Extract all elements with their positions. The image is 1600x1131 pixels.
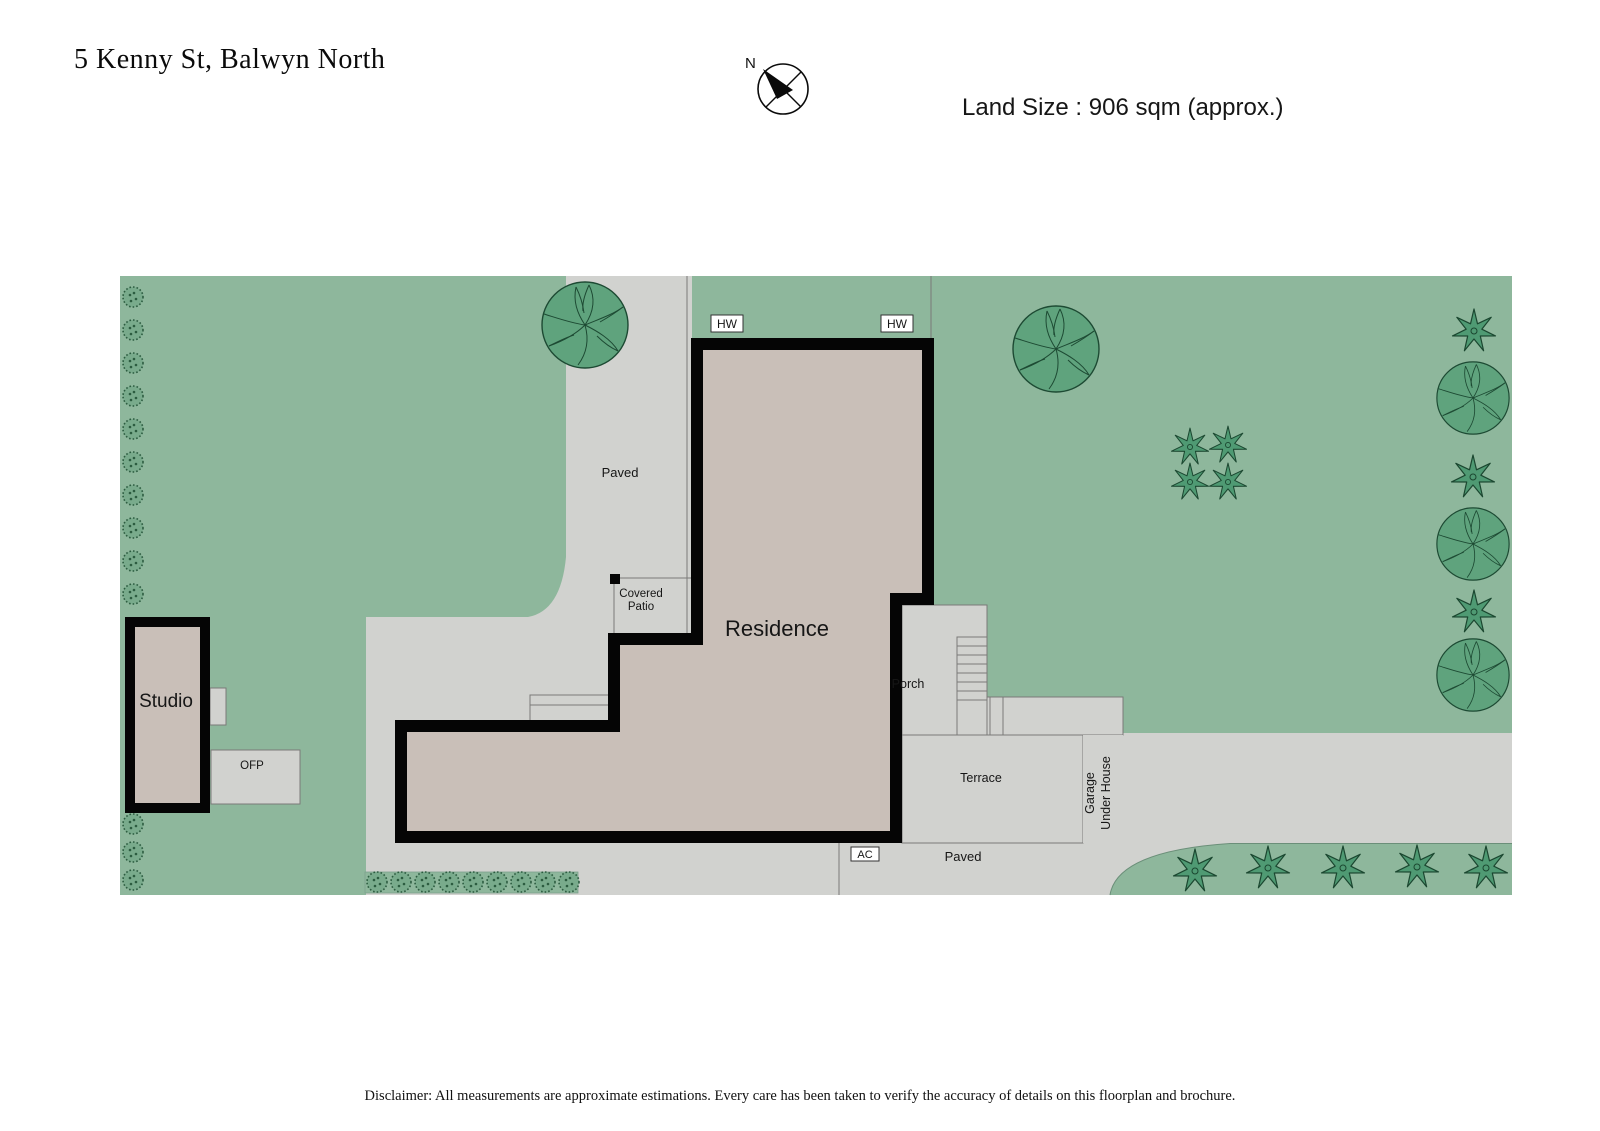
terrace-area [902, 735, 1083, 843]
hw-right-label: HW [887, 317, 908, 331]
tree-icon [1437, 639, 1509, 711]
site-plan: HW HW AC Paved Residence Covered Patio P… [0, 0, 1600, 1131]
shrub-icon [123, 287, 143, 307]
ofp-area [211, 750, 300, 804]
shrub-icon [123, 584, 143, 604]
tree-icon [1437, 508, 1509, 580]
shrub-icon [123, 814, 143, 834]
covered-patio-label-line2: Patio [628, 601, 654, 613]
tree-icon [1013, 306, 1099, 392]
paved-driveway-label: Paved [602, 465, 639, 480]
shrub-icon [123, 518, 143, 538]
shrub-icon [123, 353, 143, 373]
garage-label-line1: Garage [1083, 772, 1097, 814]
landing-area [987, 697, 1123, 735]
porch-area [902, 605, 987, 735]
shrub-icon [123, 452, 143, 472]
shrub-icon [439, 872, 459, 892]
shrub-icon [415, 872, 435, 892]
shrub-icon [123, 842, 143, 862]
hw-left-label: HW [717, 317, 738, 331]
shrub-icon [123, 870, 143, 890]
terrace-label: Terrace [960, 771, 1002, 785]
ofp-label: OFP [240, 760, 264, 772]
residence-label: Residence [725, 616, 829, 641]
shrub-icon [123, 320, 143, 340]
shrub-icon [535, 872, 555, 892]
covered-patio-label-line1: Covered [619, 588, 662, 600]
garage-label-line2: Under House [1099, 756, 1113, 830]
shrub-icon [123, 485, 143, 505]
shrub-icon [123, 419, 143, 439]
studio-label: Studio [139, 691, 193, 712]
shrub-icon [559, 872, 579, 892]
tree-icon [1437, 362, 1509, 434]
studio-building [130, 622, 205, 808]
shrub-icon [123, 386, 143, 406]
tree-icon [542, 282, 628, 368]
shrub-icon [511, 872, 531, 892]
shrub-icon [463, 872, 483, 892]
paved-road-area [1123, 733, 1512, 843]
patio-post [610, 574, 620, 584]
studio-step [210, 688, 226, 725]
shrub-icon [487, 872, 507, 892]
shrub-icon [123, 551, 143, 571]
paved-bottom-label: Paved [945, 849, 982, 864]
compass-icon [758, 64, 808, 114]
disclaimer-text: Disclaimer: All measurements are approxi… [0, 1088, 1600, 1105]
shrub-icon [367, 872, 387, 892]
ac-label: AC [857, 849, 872, 861]
shrub-icon [391, 872, 411, 892]
porch-label: Porch [892, 677, 925, 691]
